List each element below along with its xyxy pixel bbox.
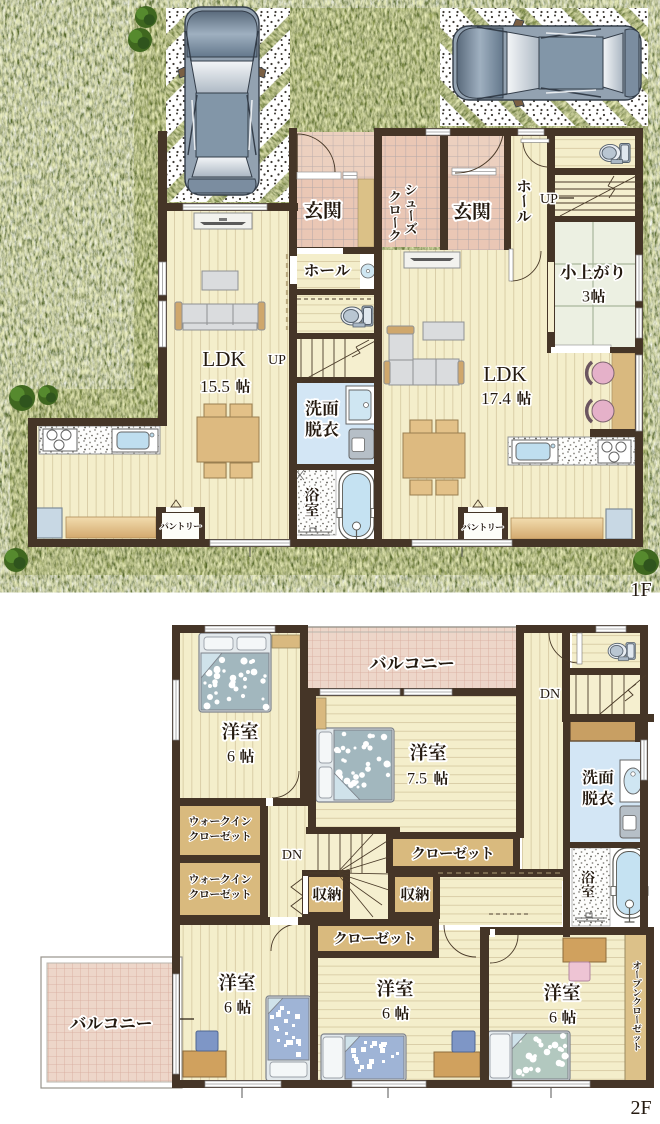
svg-text:6: 6 [224, 999, 232, 1016]
svg-text:3: 3 [582, 288, 590, 305]
svg-text:DN: DN [282, 848, 302, 863]
svg-text:LDK: LDK [202, 347, 245, 371]
svg-text:UP: UP [540, 192, 558, 207]
svg-text:6: 6 [549, 1009, 557, 1026]
svg-text:6: 6 [382, 1005, 390, 1022]
svg-text:7.5: 7.5 [407, 770, 427, 787]
svg-text:1F: 1F [630, 579, 651, 601]
svg-text:DN: DN [540, 687, 560, 702]
svg-text:17.4: 17.4 [481, 389, 511, 408]
svg-text:LDK: LDK [483, 362, 526, 386]
svg-text:UP: UP [268, 353, 286, 368]
svg-text:15.5: 15.5 [200, 377, 230, 396]
svg-text:6: 6 [227, 748, 235, 765]
svg-text:2F: 2F [630, 1097, 651, 1119]
